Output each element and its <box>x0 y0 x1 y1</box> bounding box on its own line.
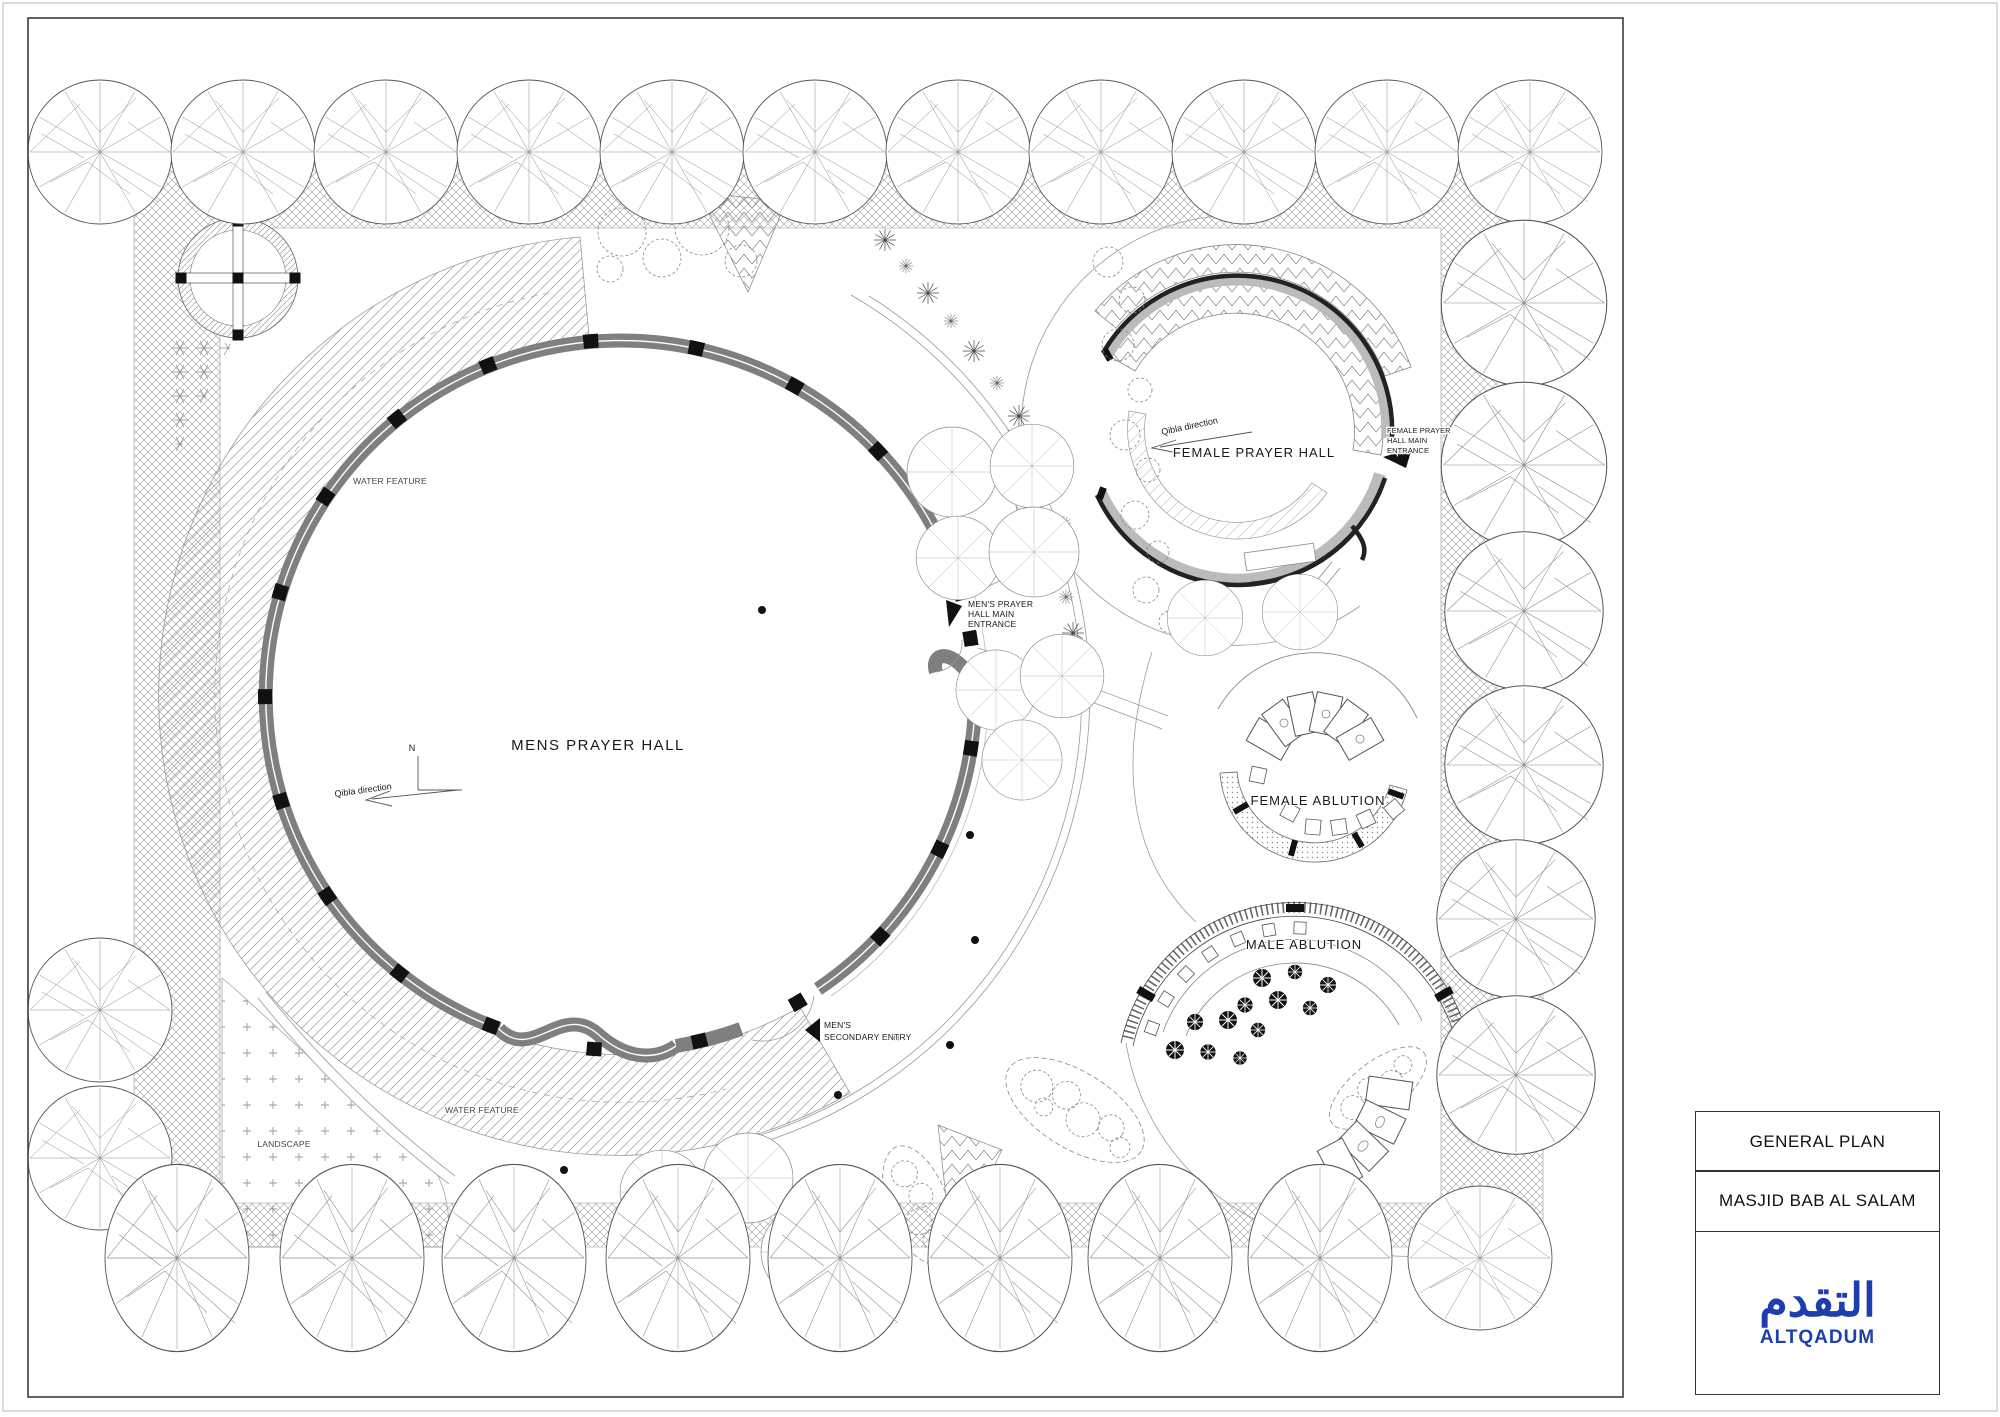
title-block-project-row: MASJID BAB AL SALAM <box>1695 1170 1940 1232</box>
landscape-label: LANDSCAPE <box>257 1139 310 1149</box>
mens-secondary-entry-label: MEN'S SECONDARY ENTRY <box>824 1020 912 1042</box>
dark-flower-shrubs <box>1166 965 1336 1065</box>
tree-icon <box>606 1164 750 1351</box>
svg-text:HALL MAIN: HALL MAIN <box>1387 436 1427 445</box>
female-ablution-building <box>1218 653 1417 862</box>
tree-icon <box>105 1164 249 1351</box>
north-label: N <box>409 743 416 753</box>
female-prayer-hall-label: FEMALE PRAYER HALL <box>1173 445 1335 460</box>
svg-text:ENTRANCE: ENTRANCE <box>968 619 1016 629</box>
svg-text:MEN'S PRAYER: MEN'S PRAYER <box>968 599 1033 609</box>
qibla-female-label: Qibla direction <box>1160 415 1218 437</box>
tree-icon <box>457 80 601 224</box>
tree-icon <box>171 80 315 224</box>
scalloped-shrubs <box>597 201 1181 633</box>
female-ablution-label: FEMALE ABLUTION <box>1251 793 1386 808</box>
brand-logo-latin: ALTQADUM <box>1760 1327 1875 1349</box>
tree-icon <box>1088 1164 1232 1351</box>
male-ablution-label: MALE ABLUTION <box>1246 937 1362 952</box>
water-feature-lower-label: WATER FEATURE <box>445 1105 519 1115</box>
tree-icon <box>768 1164 912 1351</box>
tree-icon <box>743 80 887 224</box>
svg-text:SECONDARY ENTRY: SECONDARY ENTRY <box>824 1032 912 1042</box>
mens-prayer-hall-ring <box>265 340 980 1055</box>
plan-title: GENERAL PLAN <box>1750 1132 1886 1152</box>
tree-icon <box>928 1164 1072 1351</box>
plaza-path-arcs <box>740 295 1462 1257</box>
mens-prayer-hall-label: MENS PRAYER HALL <box>511 737 685 754</box>
tree-icon <box>1437 996 1595 1154</box>
title-block-plan-row: GENERAL PLAN <box>1695 1111 1940 1172</box>
tree-icon <box>1441 220 1607 386</box>
svg-text:MEN'S: MEN'S <box>824 1020 851 1030</box>
svg-text:FEMALE PRAYER: FEMALE PRAYER <box>1387 426 1451 435</box>
brand-logo-arabic: التقدم <box>1759 1277 1876 1323</box>
tree-icon <box>314 80 458 224</box>
tree-icon <box>1441 382 1607 548</box>
tree-icon <box>28 938 172 1082</box>
entrance-markers <box>805 448 1412 1042</box>
water-feature-upper-label: WATER FEATURE <box>353 476 427 486</box>
project-title: MASJID BAB AL SALAM <box>1719 1191 1916 1211</box>
sheet: MENS PRAYER HALL FEMALE PRAYER HALL FEMA… <box>0 0 2000 1417</box>
tree-icon <box>442 1164 586 1351</box>
mens-main-entrance-label: MEN'S PRAYER HALL MAIN ENTRANCE <box>968 599 1033 629</box>
tree-icon <box>28 80 172 224</box>
tree-icon <box>1248 1164 1392 1351</box>
tree-icon <box>280 1164 424 1351</box>
tree-icon <box>1408 1186 1552 1330</box>
tree-icon <box>600 80 744 224</box>
tree-icon <box>1458 80 1602 224</box>
svg-text:ENTRANCE: ENTRANCE <box>1387 446 1429 455</box>
mens-main-entrance-arrow <box>946 600 962 627</box>
tree-icon <box>1315 80 1459 224</box>
svg-text:HALL MAIN: HALL MAIN <box>968 609 1014 619</box>
title-block: GENERAL PLAN MASJID BAB AL SALAM التقدم … <box>1695 1111 1940 1395</box>
tree-icon <box>1437 840 1595 998</box>
north-qibla-mens <box>366 756 462 806</box>
female-prayer-hall <box>1021 216 1411 645</box>
tree-icon <box>1029 80 1173 224</box>
tree-icon <box>1445 532 1603 690</box>
tree-icon <box>1445 686 1603 844</box>
title-block-logo-row: التقدم ALTQADUM <box>1695 1231 1940 1395</box>
tree-icon <box>886 80 1030 224</box>
tree-icon <box>1172 80 1316 224</box>
qibla-mens-label: Qibla direction <box>334 781 392 799</box>
